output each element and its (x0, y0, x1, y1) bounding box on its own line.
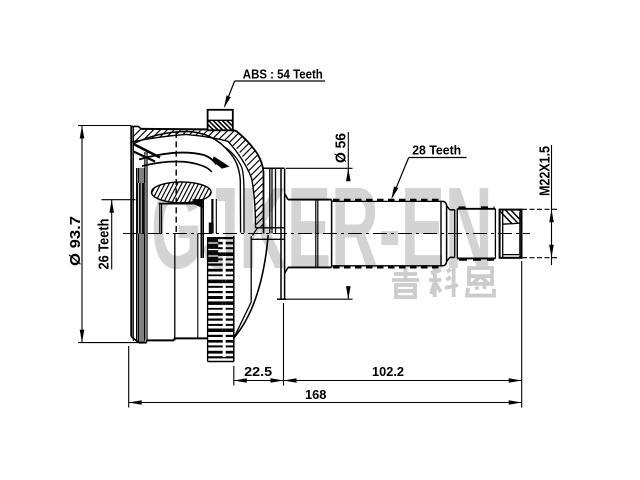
svg-text:26 Teeth: 26 Teeth (97, 219, 113, 270)
svg-text:28 Teeth: 28 Teeth (412, 143, 461, 158)
svg-text:22.5: 22.5 (244, 364, 272, 379)
svg-text:ABS : 54 Teeth: ABS : 54 Teeth (243, 67, 323, 82)
svg-text:168: 168 (305, 387, 327, 402)
svg-text:M22X1.5: M22X1.5 (538, 146, 554, 196)
svg-text:102.2: 102.2 (372, 364, 404, 379)
svg-text:Ø 93.7: Ø 93.7 (68, 216, 84, 266)
svg-text:Ø 56: Ø 56 (334, 133, 350, 163)
